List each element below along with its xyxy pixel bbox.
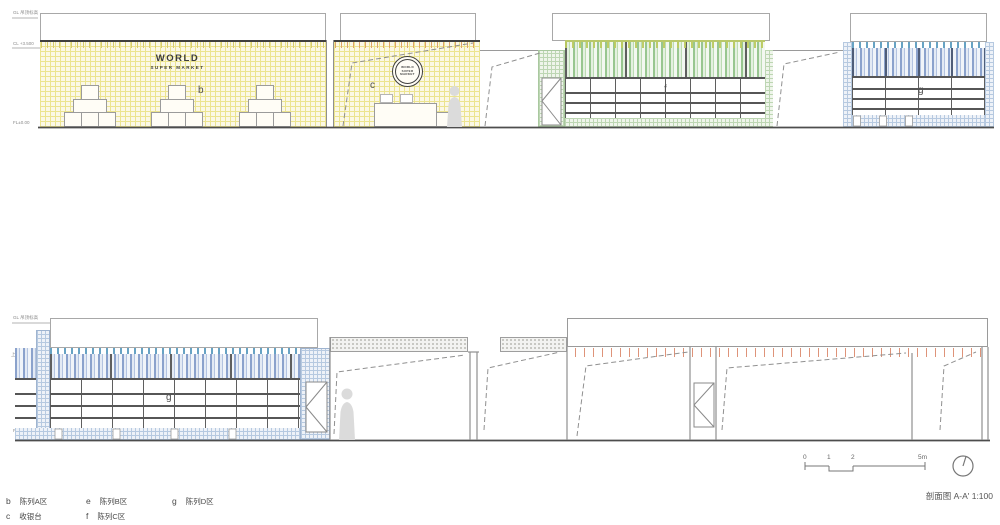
elevation-marker-top-floor: FL±0.00 [13, 121, 29, 126]
skylight-bay [773, 50, 843, 127]
pier-column-wide [300, 348, 330, 440]
legend-key: c [6, 511, 10, 521]
structural-column [326, 40, 334, 127]
section-f-right-wall [765, 50, 773, 127]
section-g-base-band [852, 115, 985, 127]
elevation-marker-top-mid: CL +3.500 [13, 42, 34, 47]
right-hall-ceiling-ticks [575, 348, 983, 357]
drawing-canvas: GL 吊顶标高 CL +3.500 FL±0.00 GL 吊顶标高 上翻线 FL… [0, 0, 1000, 525]
bottom-g-ceiling-ticks [50, 348, 318, 354]
brand-logo-roundel: WORLD SUPER MARKET [392, 56, 423, 87]
scale-bar-labels: 0 1 2 5m [803, 454, 927, 461]
braced-door-panels [306, 78, 714, 432]
legend-label: 收银台 [19, 511, 42, 522]
section-c-roof [340, 13, 476, 41]
person-silhouette [339, 86, 462, 440]
zone-label-g-bottom: g [166, 393, 172, 403]
legend-key: b [6, 496, 11, 506]
display-stack [64, 85, 116, 127]
scale-2: 2 [851, 454, 855, 461]
elevation-marker-top-ceiling: GL 吊顶标高 [13, 11, 38, 16]
legend-item-g: g 陈列D区 [172, 496, 214, 507]
bulkhead-band [330, 337, 468, 352]
section-f-roof [552, 13, 770, 41]
bottom-g-base-band [15, 428, 330, 440]
cashier-counter [374, 103, 437, 127]
section-f-left-wall [538, 50, 565, 127]
legend-label: 陈列A区 [20, 496, 48, 507]
scale-bar [805, 462, 925, 471]
logo-line-3: MARKET [400, 73, 415, 77]
register-monitor [380, 94, 393, 103]
skylight-bay [480, 50, 538, 127]
display-stack [239, 85, 291, 127]
sign-super-market: SUPER MARKET [125, 65, 230, 71]
cut-edge-shelving [15, 378, 36, 428]
zone-label-g-top: g [918, 86, 924, 96]
section-c-ceiling-ticks [335, 42, 479, 48]
right-hall-roof [567, 318, 988, 347]
legend-label: 陈列D区 [186, 496, 214, 507]
section-b-ceiling-ticks [41, 42, 325, 48]
sign-world: WORLD [125, 53, 230, 65]
legend-label: 陈列C区 [97, 511, 125, 522]
storefront-sign: WORLD SUPER MARKET [125, 53, 230, 71]
bulkhead-band [500, 337, 567, 352]
pier-column [36, 330, 50, 440]
scale-5m: 5m [918, 454, 927, 461]
zone-label-f: f [664, 85, 667, 95]
legend-key: e [86, 496, 91, 506]
bottom-g-roof [50, 318, 318, 348]
section-f-base-band [565, 118, 765, 127]
legend-item-f: f 陈列C区 [86, 511, 125, 522]
section-g-posts [852, 48, 985, 76]
north-symbol-icon [953, 456, 973, 476]
section-g-right-wall [985, 42, 994, 127]
section-f-ceiling-ticks [565, 42, 765, 48]
drawing-title: 剖面图 A-A' 1:100 [853, 490, 993, 502]
cut-edge-stripe-band [15, 348, 36, 378]
register-monitor [400, 94, 413, 103]
display-stack [151, 85, 203, 127]
legend-item-c: c 收银台 [6, 511, 42, 522]
cashier-counter-return [436, 112, 452, 127]
legend-item-b: b 陈列A区 [6, 496, 47, 507]
legend-key: f [86, 511, 88, 521]
scale-0: 0 [803, 454, 807, 461]
bottom-g-shelving [50, 378, 300, 428]
legend-label: 陈列B区 [100, 496, 128, 507]
section-g-roof [850, 13, 987, 42]
legend-key: g [172, 496, 177, 506]
section-g-left-wall [843, 42, 852, 127]
elevation-marker-bottom-ceiling: GL 吊顶标高 [13, 316, 38, 321]
section-b-roof [40, 13, 326, 41]
zone-label-c: c [370, 81, 375, 91]
legend-item-e: e 陈列B区 [86, 496, 127, 507]
scale-1: 1 [827, 454, 831, 461]
